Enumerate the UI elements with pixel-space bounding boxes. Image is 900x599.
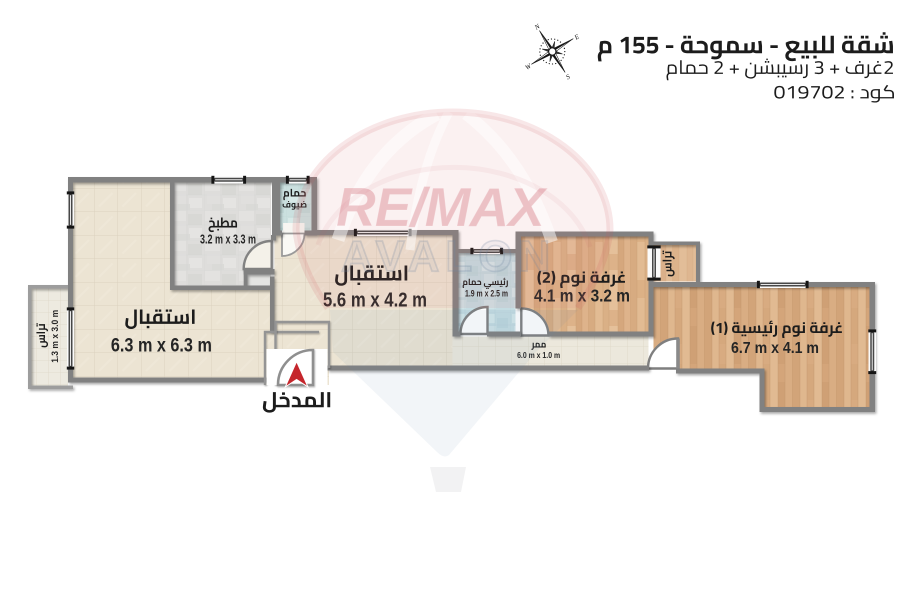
svg-text:AVALON: AVALON [341, 232, 556, 281]
svg-text:RE/MAX: RE/MAX [336, 176, 548, 238]
svg-text:1.3 m x 3.0 m: 1.3 m x 3.0 m [50, 310, 60, 363]
svg-text:6.7 m x 4.1 m: 6.7 m x 4.1 m [731, 340, 819, 357]
svg-text:3.2 m x 3.3 m: 3.2 m x 3.3 m [200, 233, 256, 247]
svg-text:6.3 m x 6.3 m: 6.3 m x 6.3 m [111, 335, 212, 356]
